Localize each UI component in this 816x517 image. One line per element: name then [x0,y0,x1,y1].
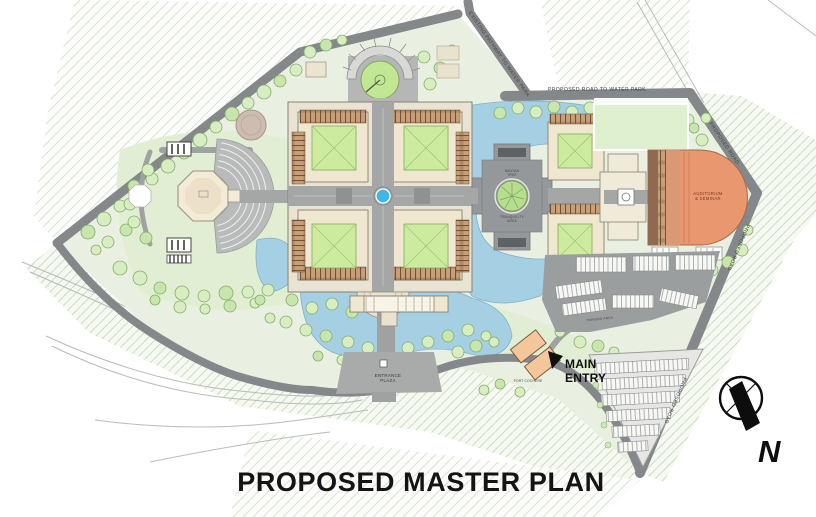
tree-icon [133,271,147,285]
tree-icon [306,302,318,314]
tree-icon [242,286,254,298]
tree-icon [494,107,506,119]
tree-icon [300,324,312,336]
tree-icon [81,225,95,239]
tree-icon [313,351,323,361]
tree-icon [337,35,347,45]
tree-icon [304,46,316,58]
tree-icon [142,164,154,176]
tree-icon [161,159,175,173]
tree-icon [265,313,275,323]
tree-icon [175,286,189,300]
tree-icon [174,301,186,313]
tree-icon [515,387,525,397]
tree-icon [470,340,482,352]
tree-icon [274,75,286,87]
auditorium-label: AUDITORIUM& SEMINAR [693,191,723,201]
tree-icon [342,336,354,348]
tree-icon [592,340,604,352]
road-label-water-park: PROPOSED ROAD TO WATER PARK [548,87,646,93]
tree-icon [154,282,166,294]
tree-icon [219,286,233,300]
tree-icon [150,295,160,305]
tree-icon [198,290,210,302]
tree-icon [200,304,210,314]
north-east-lawn [594,98,688,150]
tree-icon [530,106,542,118]
tree-icon [128,216,140,228]
tree-icon [242,97,254,109]
tree-icon [210,121,222,133]
tree-icon [320,39,332,51]
tree-icon [113,261,127,275]
plan-title: PROPOSED MASTER PLAN [237,467,605,497]
tree-icon [422,336,434,348]
tree-icon [479,385,489,395]
tree-icon [320,330,332,342]
tree-icon [548,101,560,113]
tree-icon [495,379,505,389]
north-label: N [758,434,781,469]
tree-icon [290,64,302,76]
master-plan-drawing: BANYANTREE TRANQUILITYAREA AUDITORIUM& S… [0,0,816,517]
tree-icon [442,330,454,342]
tree-icon [574,336,586,348]
tree-icon [91,245,101,255]
tree-icon [280,316,292,328]
main-academic-complex [288,102,472,318]
tree-icon [689,123,699,133]
tree-icon [257,85,271,99]
tree-icon [462,324,474,336]
tree-icon [418,51,430,63]
tree-icon [696,134,708,146]
tree-icon [102,236,114,248]
tree-icon [452,346,464,358]
tree-icon [424,78,436,90]
tree-icon [326,298,338,310]
tree-icon [262,284,274,296]
tree-icon [286,294,298,306]
master-plan-page: BANYANTREE TRANQUILITYAREA AUDITORIUM& S… [0,0,816,517]
tree-icon [489,337,499,347]
tree-icon [512,102,524,114]
tree-icon [224,300,236,312]
tree-icon [193,133,207,147]
tree-icon [255,295,265,305]
tree-icon [97,212,111,226]
tree-icon [140,232,152,244]
port-cochere-label: PORT COCHERE [514,379,543,383]
tree-icon [701,113,711,123]
